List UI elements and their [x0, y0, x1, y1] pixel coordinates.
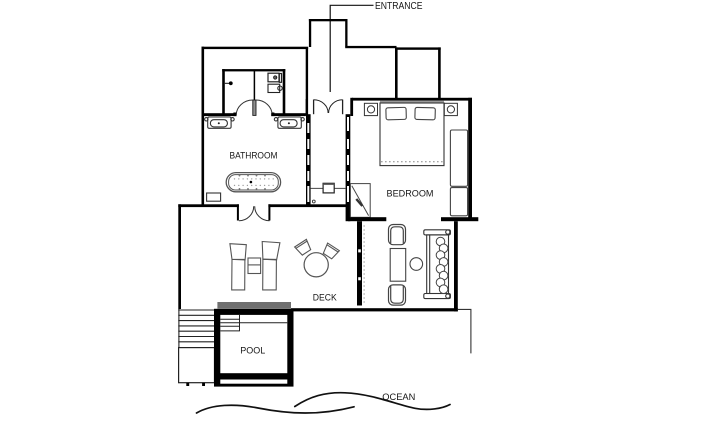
svg-text:BATHROOM: BATHROOM [230, 151, 278, 162]
svg-text:DECK: DECK [313, 292, 338, 303]
svg-text:ENTRANCE: ENTRANCE [375, 1, 423, 12]
svg-text:BEDROOM: BEDROOM [387, 188, 434, 199]
svg-text:POOL: POOL [240, 346, 265, 357]
